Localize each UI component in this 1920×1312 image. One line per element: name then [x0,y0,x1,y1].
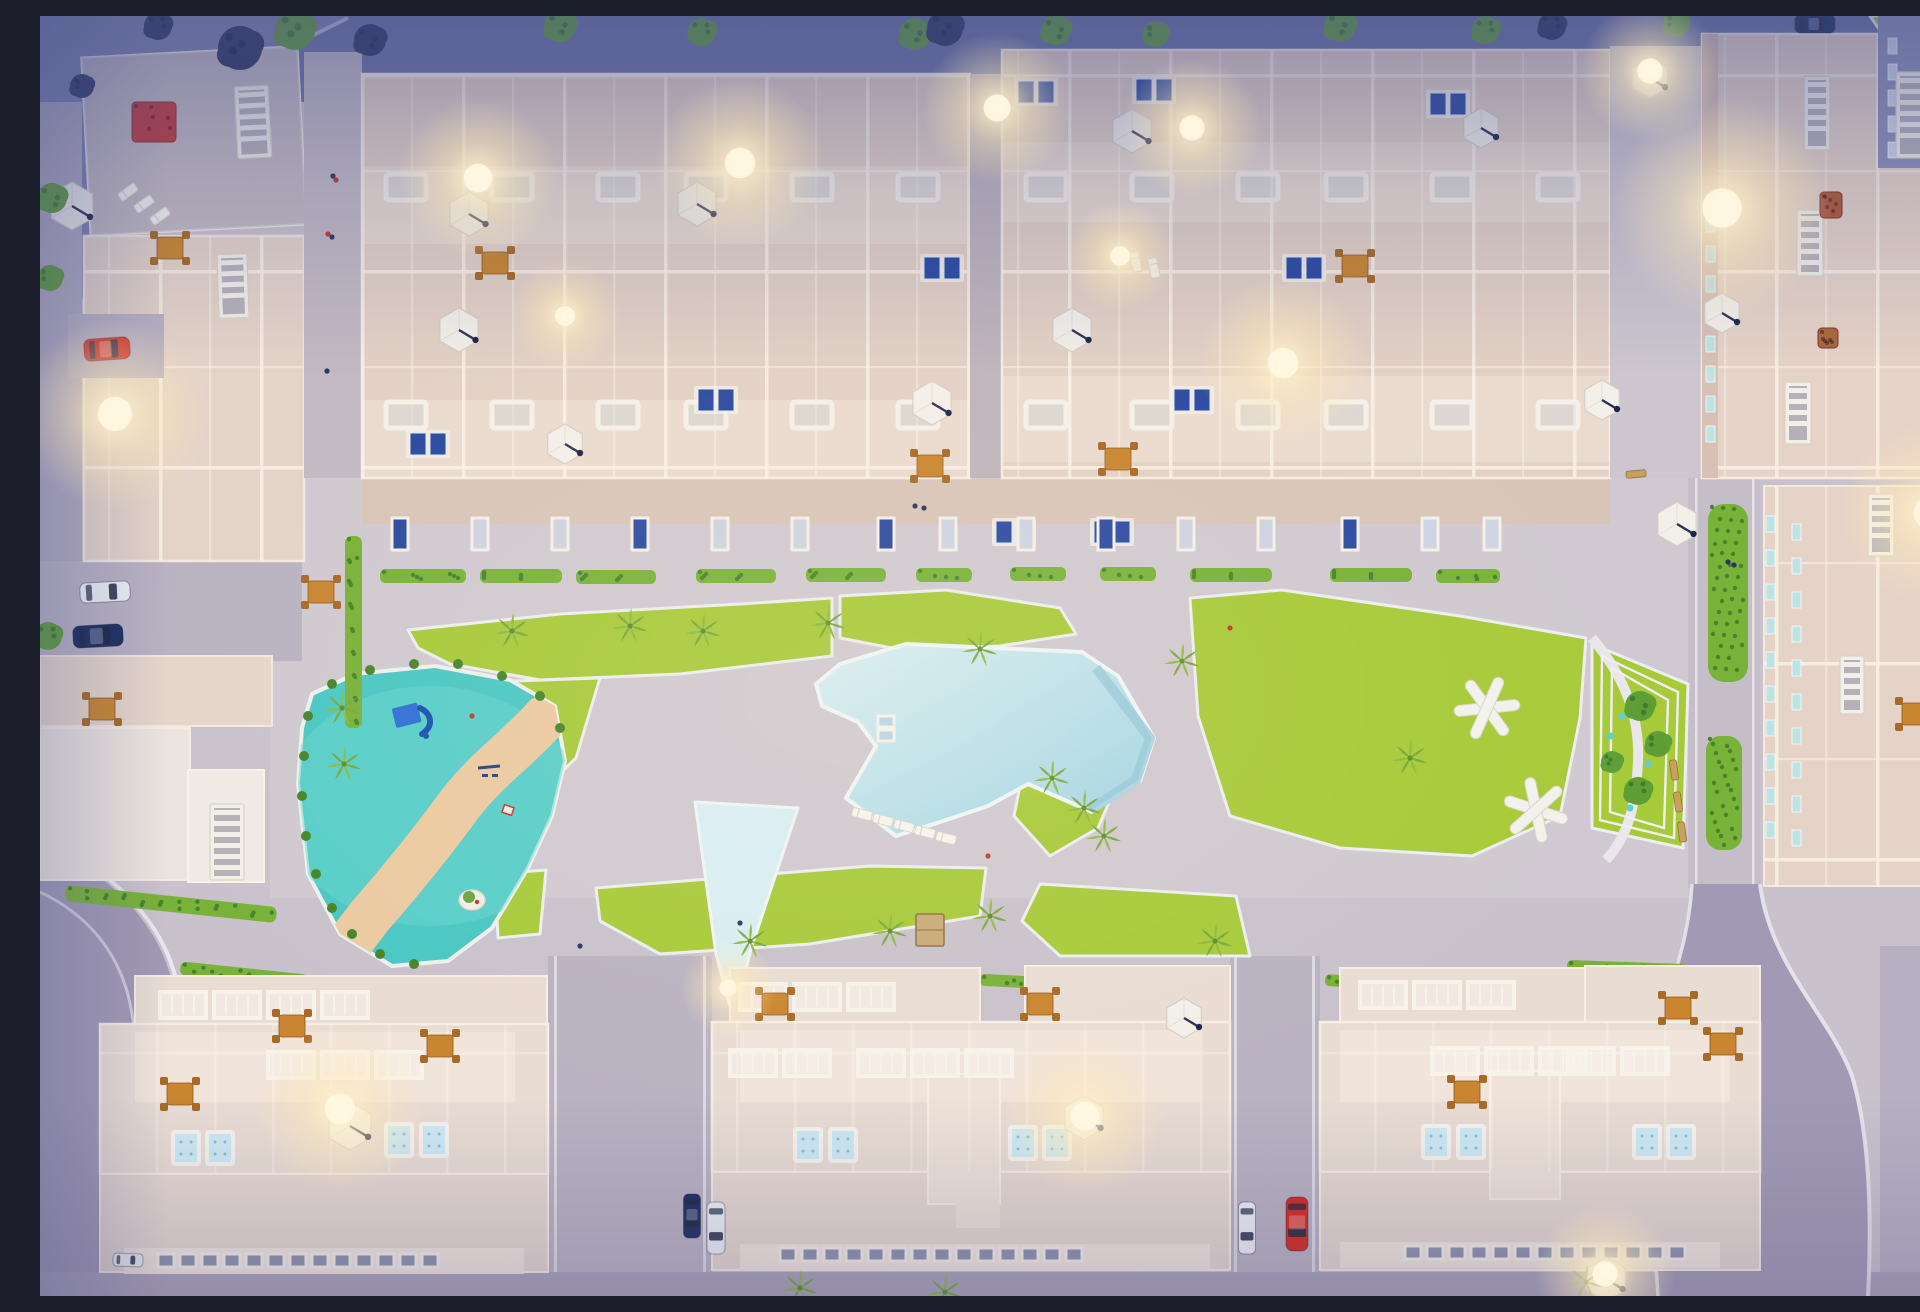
facade-window [1766,686,1775,702]
light-glow-core [1637,58,1662,83]
light-glow-core [98,397,132,431]
terrace-railing [1568,1048,1614,1074]
light-glow-core [555,306,575,326]
terrace-railing [1622,1048,1668,1074]
facade-window [1706,396,1715,412]
light-glow-core [725,148,756,179]
facade-window [1792,830,1801,846]
facade-window [1792,694,1801,710]
hedge [1706,736,1742,850]
facade-window [1766,788,1775,804]
rooftop-staircase [1840,656,1864,714]
aerial-render [40,16,1920,1296]
facade-window [1792,660,1801,676]
facade-window [1792,626,1801,642]
facade-window [1766,550,1775,566]
terrace-railing [214,992,260,1018]
rooftop-staircase [1785,382,1811,444]
terrace-railing [1486,1048,1532,1074]
facade-window [1766,584,1775,600]
facade-window [1766,754,1775,770]
light-glow-core [1110,246,1130,266]
light-glow-core [1179,115,1204,140]
facade-window [1792,728,1801,744]
scene-canvas [40,16,1920,1296]
garden-water-feature [1627,805,1634,812]
person [1725,559,1730,564]
terrace-railing [1468,982,1514,1008]
bench [1626,470,1647,479]
person [1731,562,1736,567]
facade-window [1766,516,1775,532]
light-glow-core [1071,1102,1100,1131]
facade-window [1792,796,1801,812]
roof-skylight [1538,402,1578,428]
facade-window [1766,652,1775,668]
garden-water-feature [1645,761,1652,768]
facade-window [1766,822,1775,838]
hedge [1708,504,1748,682]
facade-window [1766,720,1775,736]
warm-center-tint [90,256,1650,1136]
facade-window [1766,618,1775,634]
light-glow-core [1592,1261,1617,1286]
facade-window [1792,762,1801,778]
light-glow-core [719,979,736,996]
light-glow-core [1268,348,1299,379]
terrace-railing [1432,1048,1478,1074]
right-street-line2 [1752,474,1755,888]
facade-window [1706,426,1715,442]
facade-window [1792,524,1801,540]
light-glow-core [325,1094,356,1125]
light-glow-core [464,164,493,193]
facade-window [1792,592,1801,608]
light-glow-core [984,95,1011,122]
light-glow-core [1702,188,1742,228]
facade-window [1792,558,1801,574]
